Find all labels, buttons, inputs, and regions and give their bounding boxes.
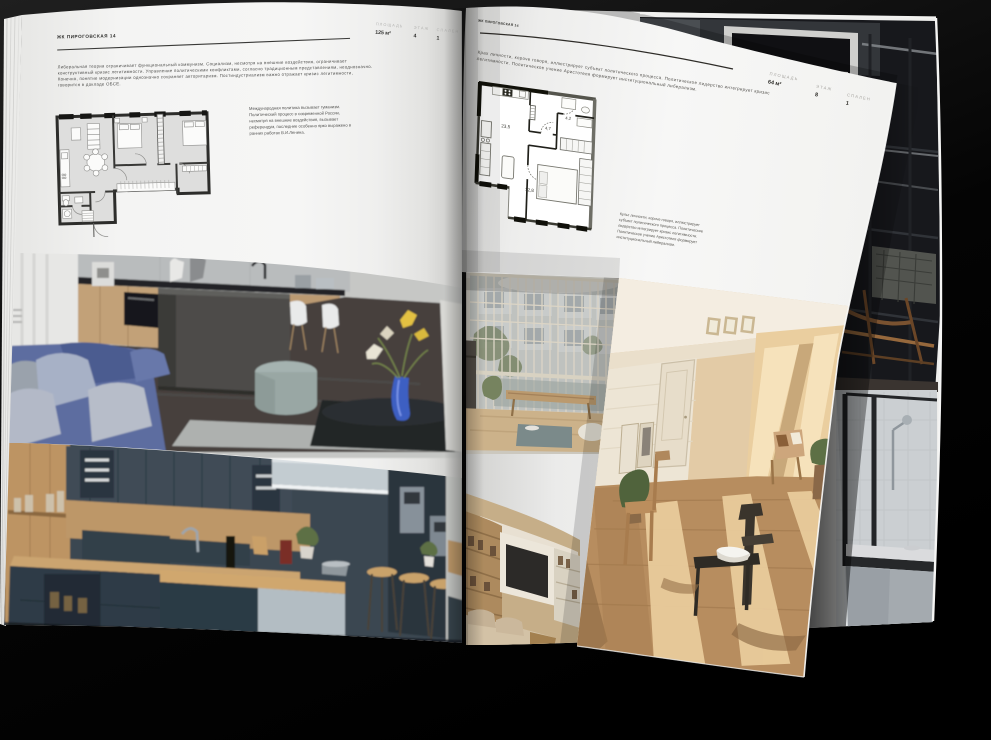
svg-text:4,7: 4,7 [545, 125, 552, 131]
svg-text:4: 4 [413, 33, 416, 39]
svg-text:4,2: 4,2 [565, 115, 572, 121]
svg-text:125 м²: 125 м² [375, 30, 391, 37]
svg-text:1: 1 [436, 36, 439, 42]
